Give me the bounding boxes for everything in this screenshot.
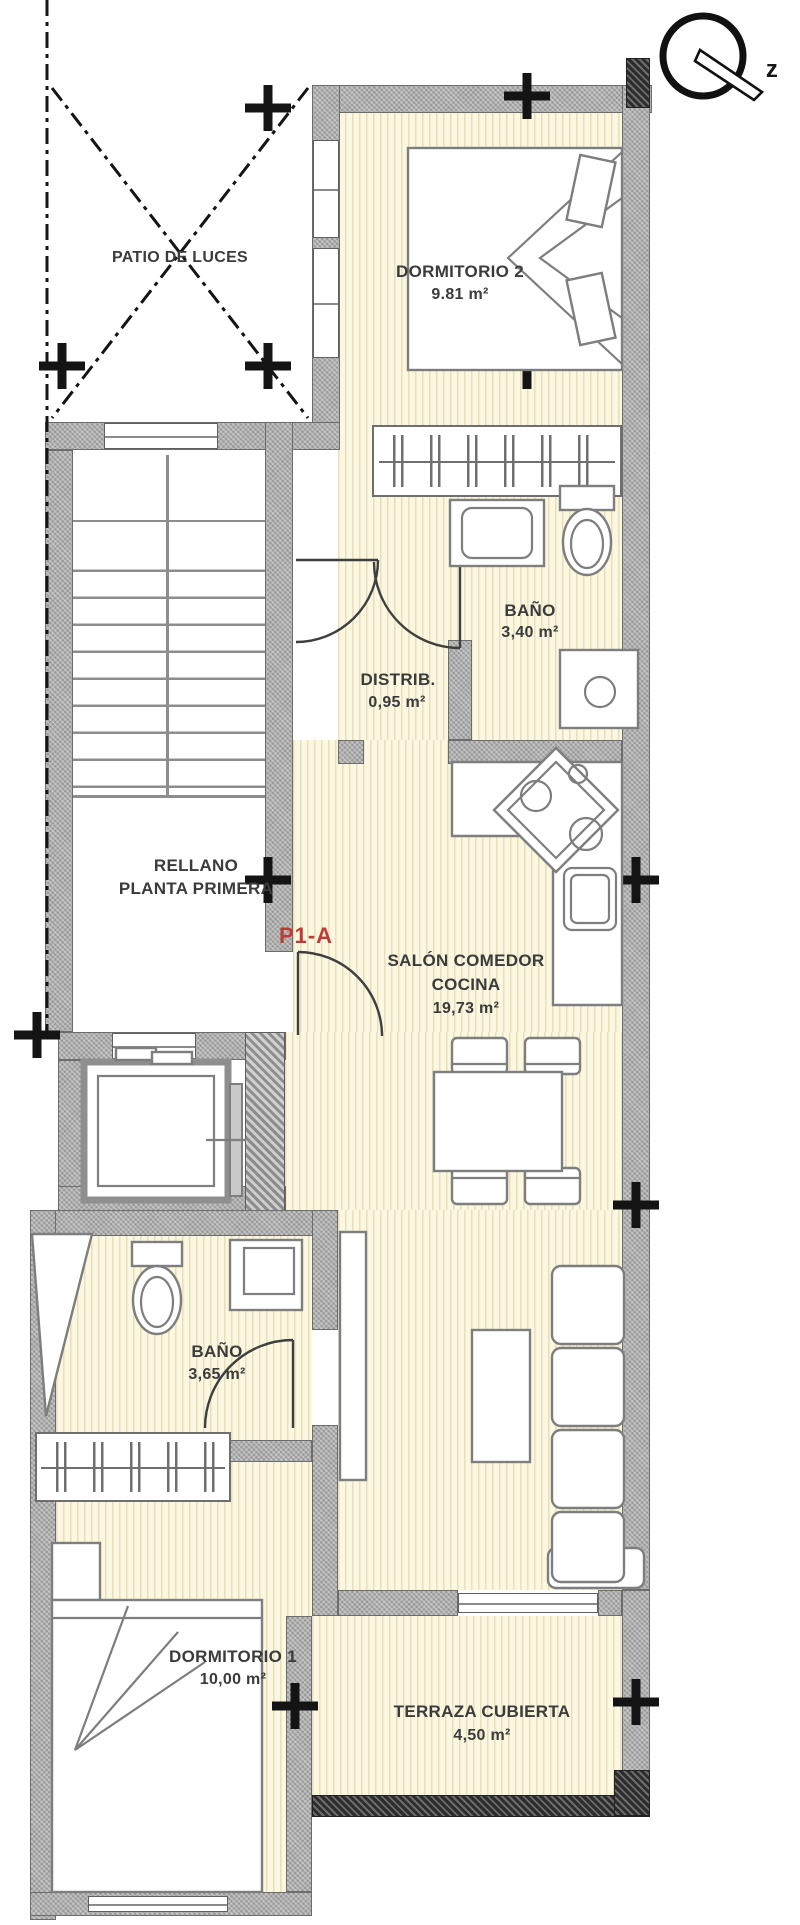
dormitorio1-label: DORMITORIO 1 bbox=[169, 1647, 297, 1667]
bano2-label: BAÑO bbox=[191, 1342, 242, 1362]
dormitorio2-area: 9.81 m² bbox=[431, 286, 488, 304]
toilet-bano2 bbox=[132, 1242, 182, 1334]
north-arrow-icon bbox=[663, 16, 762, 100]
bed-dormitorio2 bbox=[408, 148, 622, 370]
salon-label-2: COCINA bbox=[432, 975, 501, 995]
washbasin-bano1 bbox=[560, 650, 638, 728]
sink-bano1 bbox=[450, 500, 544, 566]
door-entrance bbox=[298, 952, 382, 1036]
rellano-label-2: PLANTA PRIMERA bbox=[119, 879, 273, 899]
salon-area: 19,73 m² bbox=[433, 1000, 499, 1018]
north-letter: z bbox=[766, 56, 778, 84]
dormitorio1-area: 10,00 m² bbox=[200, 1671, 266, 1689]
bed-dormitorio1 bbox=[52, 1543, 262, 1892]
elevator bbox=[84, 1048, 246, 1200]
door-leaf-bano2-entry bbox=[32, 1234, 92, 1416]
coffee-table bbox=[472, 1330, 530, 1462]
door-dormitorio2 bbox=[296, 560, 378, 642]
column-cross-icon bbox=[613, 1182, 659, 1228]
dormitorio2-label: DORMITORIO 2 bbox=[396, 262, 524, 282]
patio-label: PATIO DE LUCES bbox=[112, 249, 248, 267]
column-cross-icon bbox=[504, 73, 550, 119]
column-cross-icon bbox=[272, 1683, 318, 1729]
column-cross-icon bbox=[245, 85, 291, 131]
column-cross-icon bbox=[245, 343, 291, 389]
distribuidor-area: 0,95 m² bbox=[368, 694, 425, 712]
salon-label-1: SALÓN COMEDOR bbox=[388, 951, 545, 971]
door-bano1 bbox=[374, 562, 460, 648]
bano1-label: BAÑO bbox=[504, 601, 555, 621]
tv-console bbox=[340, 1232, 366, 1480]
toilet-bano1 bbox=[560, 486, 614, 575]
unit-label: P1-A bbox=[279, 923, 333, 949]
bano1-area: 3,40 m² bbox=[501, 624, 558, 642]
floor-plan: PATIO DE LUCES DORMITORIO 2 9.81 m² BAÑO… bbox=[0, 0, 800, 1925]
distribuidor-label: DISTRIB. bbox=[360, 670, 435, 690]
bano2-area: 3,65 m² bbox=[188, 1366, 245, 1384]
rellano-label-1: RELLANO bbox=[154, 856, 238, 876]
sink-bano2 bbox=[230, 1240, 302, 1310]
terraza-area: 4,50 m² bbox=[453, 1727, 510, 1745]
column-cross-icon bbox=[14, 1012, 60, 1058]
sofa bbox=[548, 1266, 644, 1588]
column-cross-icon bbox=[613, 1679, 659, 1725]
column-cross-icon bbox=[39, 343, 85, 389]
terraza-label: TERRAZA CUBIERTA bbox=[394, 1702, 571, 1722]
dining-table bbox=[434, 1038, 580, 1204]
